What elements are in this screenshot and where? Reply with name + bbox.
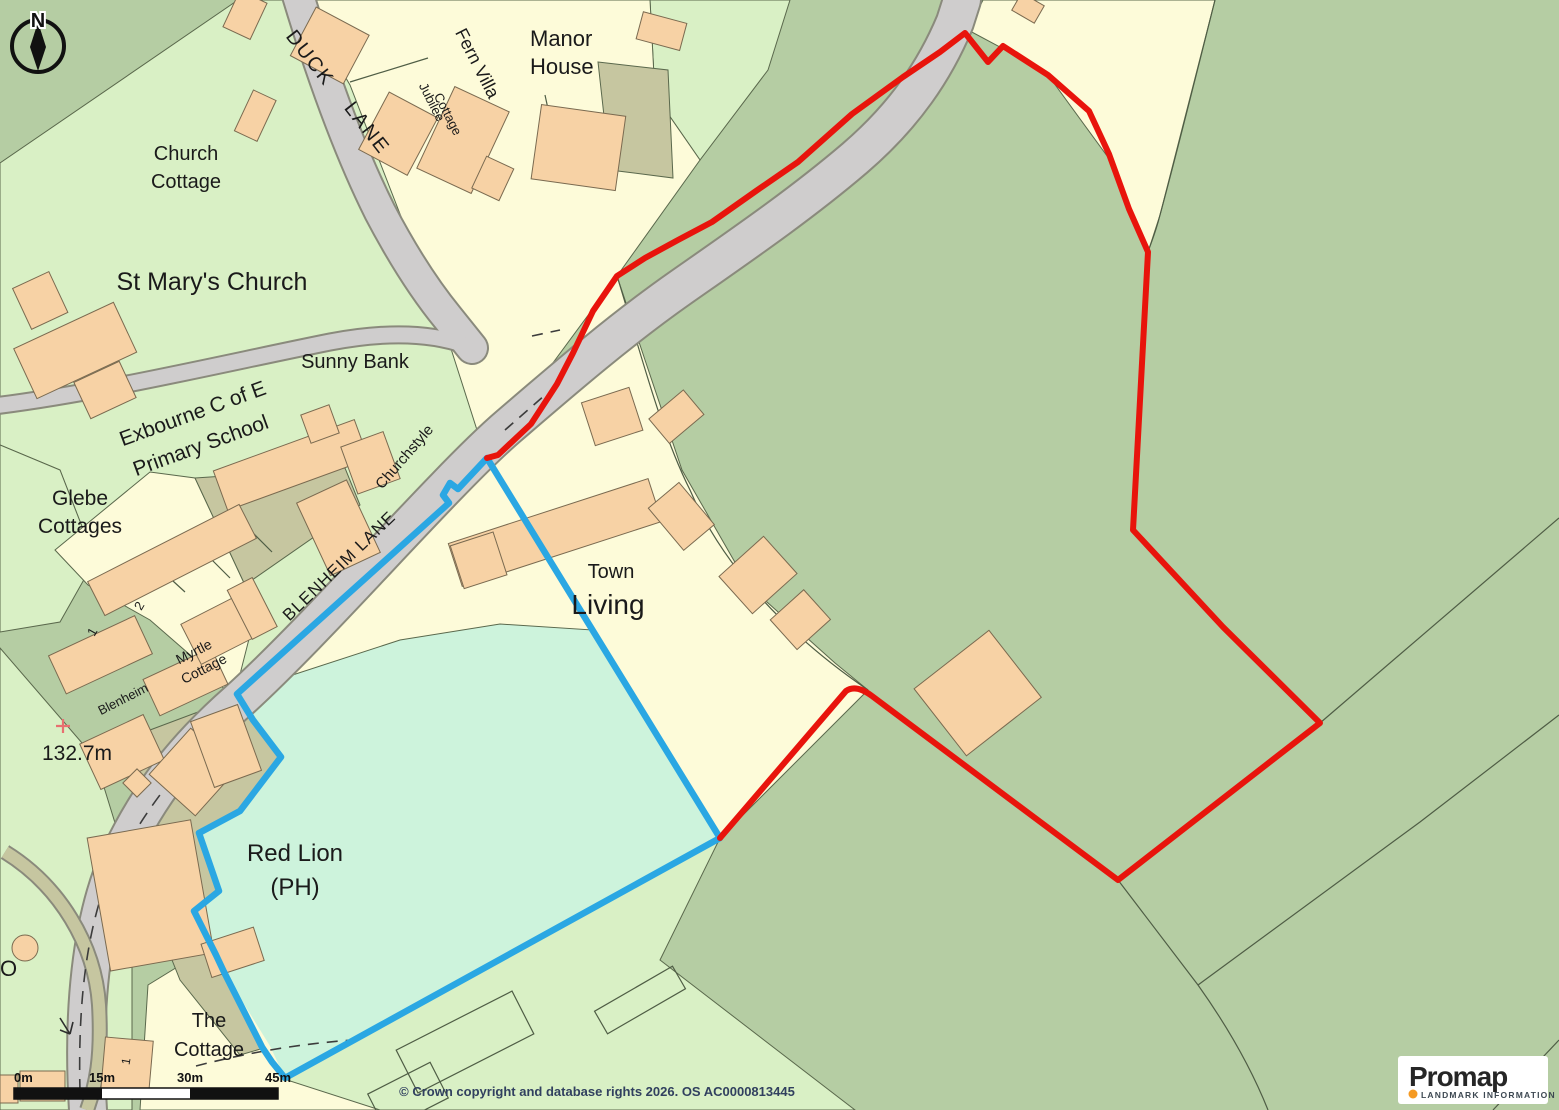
scale-tick-3: 45m [265,1070,291,1085]
map-canvas[interactable]: DUCK LANE Fern Villa Jubilee Cottage Man… [0,0,1559,1110]
label-the-cottage-2: Cottage [174,1039,244,1061]
manor-house-building [531,105,626,191]
scale-tick-2: 30m [177,1070,203,1085]
label-the-cottage-1: The [192,1010,226,1032]
label-glebe-1: Glebe [52,487,108,510]
copyright-text: © Crown copyright and database rights 20… [399,1084,795,1099]
red-lion-building [87,820,214,971]
label-town: Town [588,561,635,583]
label-spot-height: 132.7m [42,742,112,765]
label-sunny-bank: Sunny Bank [301,351,410,373]
label-manor-2: House [530,54,594,79]
promap-map-view[interactable]: DUCK LANE Fern Villa Jubilee Cottage Man… [0,0,1559,1110]
scale-tick-0: 0m [14,1070,33,1085]
label-living: Living [571,589,644,620]
logo-brand-text: Promap [1409,1061,1507,1092]
scale-tick-1: 15m [89,1070,115,1085]
logo-subtitle-text: LANDMARK INFORMATION [1421,1090,1556,1100]
label-partial-o: O [0,956,17,981]
label-church-cottage-1: Church [154,143,218,165]
label-church-cottage-2: Cottage [151,171,221,193]
label-manor-1: Manor [530,26,592,51]
logo-orange-dot [1409,1090,1418,1099]
label-glebe-2: Cottages [38,515,122,538]
promap-logo: Promap LANDMARK INFORMATION [1398,1056,1556,1104]
label-st-marys: St Mary's Church [117,268,308,296]
compass-n-label: N [31,10,45,32]
label-red-lion-2: (PH) [270,874,319,901]
label-red-lion-1: Red Lion [247,840,343,867]
